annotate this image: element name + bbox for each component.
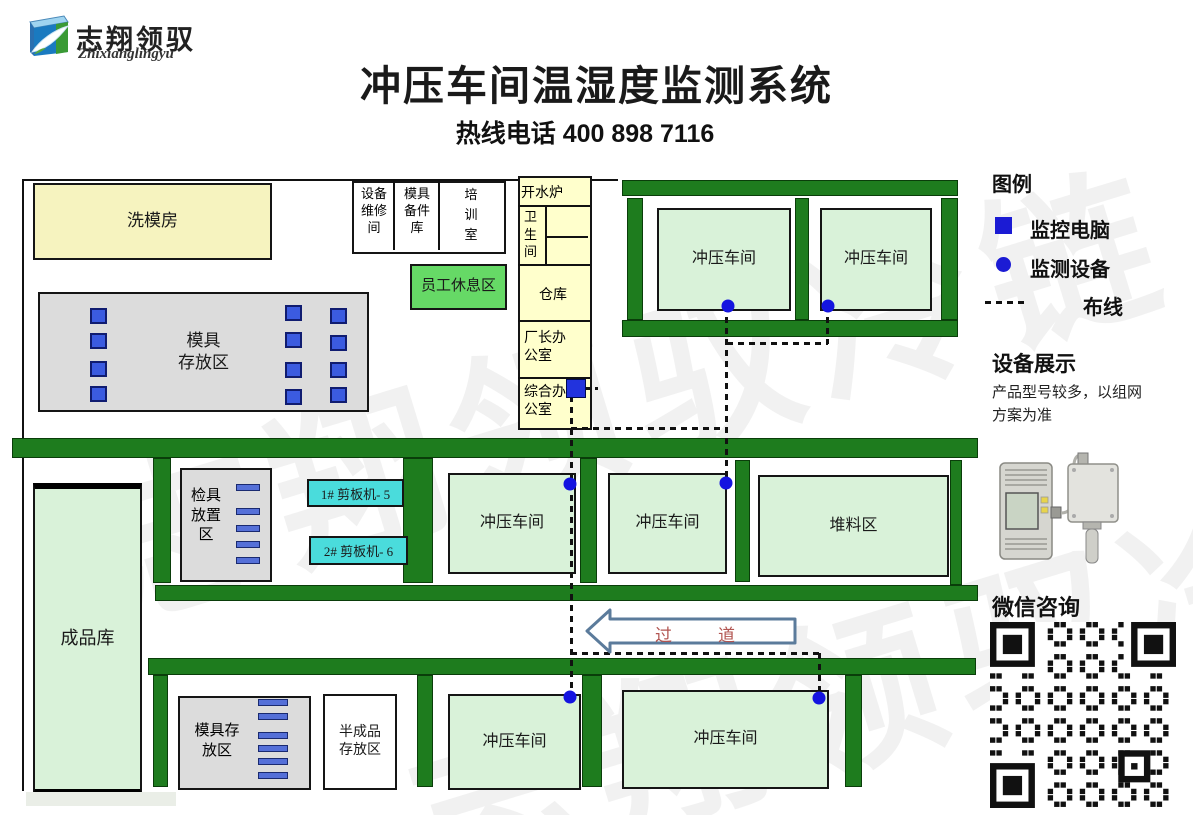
storage-slot <box>258 745 288 752</box>
storage-slot <box>90 361 107 377</box>
storage-slot <box>330 387 347 403</box>
storage-slot <box>258 772 288 779</box>
monitoring-device-dot <box>564 691 577 704</box>
legend-device-label: 监测设备 <box>1030 253 1110 282</box>
device-panel-note: 产品型号较多，以组网 方案为准 <box>992 381 1192 428</box>
legend-wiring-icon <box>985 301 1027 304</box>
storage-slot <box>258 699 288 706</box>
monitoring-device-dot <box>564 478 577 491</box>
storage-slot <box>330 308 347 324</box>
strip-divider <box>545 205 547 265</box>
room-divider <box>438 181 440 250</box>
outer-wall-left <box>22 179 24 791</box>
storage-slot <box>90 308 107 324</box>
storage-slot <box>285 389 302 405</box>
room-label: 模具 存放区 <box>178 330 229 374</box>
device-panel-heading: 设备展示 <box>992 348 1076 378</box>
storage-slot <box>258 732 288 739</box>
room-label: 冲压车间 <box>482 732 546 753</box>
legend-heading: 图例 <box>992 168 1032 197</box>
monitoring-device-dot <box>720 477 733 490</box>
storage-slot <box>90 386 107 402</box>
storage-slot <box>285 332 302 348</box>
monitoring-device-illustration <box>990 443 1150 598</box>
room-mold-storage-bottom-label: 模具存 放区 <box>183 722 251 761</box>
wiring-line <box>727 342 828 345</box>
wall-bar <box>148 658 976 675</box>
page: 志翔领驭冷链 志翔领驭冷链 志翔领驭 Zhixianglingyu 冲压车间温湿… <box>0 0 1193 815</box>
room-toilet-label: 卫 生 间 <box>524 208 537 261</box>
wechat-qr-code <box>990 622 1176 808</box>
pillar <box>580 458 597 583</box>
room-label: 洗模房 <box>127 210 178 232</box>
pillar <box>153 458 171 583</box>
storage-slot <box>330 335 347 351</box>
storage-slot <box>285 305 302 321</box>
storage-slot <box>236 508 260 515</box>
page-title: 冲压车间温湿度监测系统 <box>0 52 1193 112</box>
room-label: 冲压车间 <box>692 249 756 270</box>
machine-label: 1# 剪板机- 5 <box>321 484 390 503</box>
aisle-label: 过 道 <box>655 621 739 646</box>
room-divider <box>393 181 395 250</box>
room-stamping-workshop: 冲压车间 <box>608 473 727 574</box>
room-boiler-label: 开水炉 <box>521 182 563 202</box>
legend-device-icon <box>996 257 1011 272</box>
monitoring-computer-square <box>566 379 586 398</box>
wechat-heading: 微信咨询 <box>992 590 1080 622</box>
pillar <box>582 675 602 787</box>
legend-wiring-label: 布线 <box>1083 291 1123 320</box>
storage-slot <box>236 525 260 532</box>
room-stamping-workshop: 冲压车间 <box>820 208 932 311</box>
legend-computer-icon <box>995 217 1012 234</box>
machine-shear-2: 2# 剪板机- 6 <box>309 536 408 565</box>
room-label: 冲压车间 <box>480 513 544 534</box>
hotline-phone: 热线电话 400 898 7116 <box>0 114 1170 150</box>
wall-bar <box>622 320 958 337</box>
pillar <box>735 460 750 582</box>
storage-slot <box>236 541 260 548</box>
pillar <box>153 675 168 787</box>
storage-slot <box>330 362 347 378</box>
wiring-line <box>584 387 598 390</box>
pillar <box>627 198 643 320</box>
storage-slot <box>258 713 288 720</box>
room-label: 半成品 存放区 <box>339 724 381 760</box>
room-semi-finished: 半成品 存放区 <box>323 694 397 790</box>
room-general-office-label: 综合办 公室 <box>524 384 566 420</box>
storage-slot <box>236 557 260 564</box>
room-stamping-workshop: 冲压车间 <box>448 473 576 574</box>
room-wash-mold: 洗模房 <box>33 183 272 260</box>
room-label: 冲压车间 <box>635 513 699 534</box>
room-gauge-area-label: 检具 放置 区 <box>186 487 226 546</box>
strip-divider <box>545 236 588 238</box>
pillar <box>417 675 433 787</box>
wall-bar <box>622 180 958 196</box>
room-stamping-workshop: 冲压车间 <box>448 694 581 790</box>
wall-bar <box>12 438 978 458</box>
strip-divider <box>518 205 590 207</box>
room-label: 冲压车间 <box>693 729 757 750</box>
storage-slot <box>285 362 302 378</box>
room-mold-storage-top: 模具 存放区 <box>38 292 369 412</box>
machine-label: 2# 剪板机- 6 <box>324 541 393 560</box>
room-label: 堆料区 <box>829 516 877 537</box>
pillar <box>950 460 962 585</box>
strip-divider <box>518 320 590 322</box>
room-label: 冲压车间 <box>844 249 908 270</box>
machine-shear-1: 1# 剪板机- 5 <box>307 479 404 507</box>
pillar <box>795 198 809 320</box>
monitoring-device-dot <box>722 300 735 313</box>
room-stamping-workshop: 冲压车间 <box>622 690 829 789</box>
room-label: 成品库 <box>61 627 115 650</box>
room-training-label: 培 训 室 <box>441 185 501 245</box>
storage-slot <box>90 333 107 349</box>
shadow <box>26 792 176 806</box>
strip-divider <box>518 264 590 266</box>
room-mold-parts-label: 模具 备件 库 <box>396 186 438 237</box>
storage-slot <box>236 484 260 491</box>
monitoring-device-dot <box>822 300 835 313</box>
legend-computer-label: 监控电脑 <box>1030 214 1110 243</box>
room-stacking-area: 堆料区 <box>758 475 949 577</box>
room-label: 员工休息区 <box>421 277 496 297</box>
room-director-office-label: 厂长办 公室 <box>524 330 566 366</box>
room-finished-goods: 成品库 <box>33 483 142 795</box>
room-stamping-workshop: 冲压车间 <box>657 208 791 311</box>
pillar <box>941 198 958 320</box>
pillar <box>845 675 862 787</box>
room-equip-repair-label: 设备 维修 间 <box>355 186 393 237</box>
wiring-line <box>725 306 728 483</box>
wiring-line <box>571 427 727 430</box>
wall-bar <box>155 585 978 601</box>
room-warehouse-label: 仓库 <box>518 284 588 304</box>
room-rest-area: 员工休息区 <box>410 264 507 310</box>
monitoring-device-dot <box>813 692 826 705</box>
storage-slot <box>258 758 288 765</box>
